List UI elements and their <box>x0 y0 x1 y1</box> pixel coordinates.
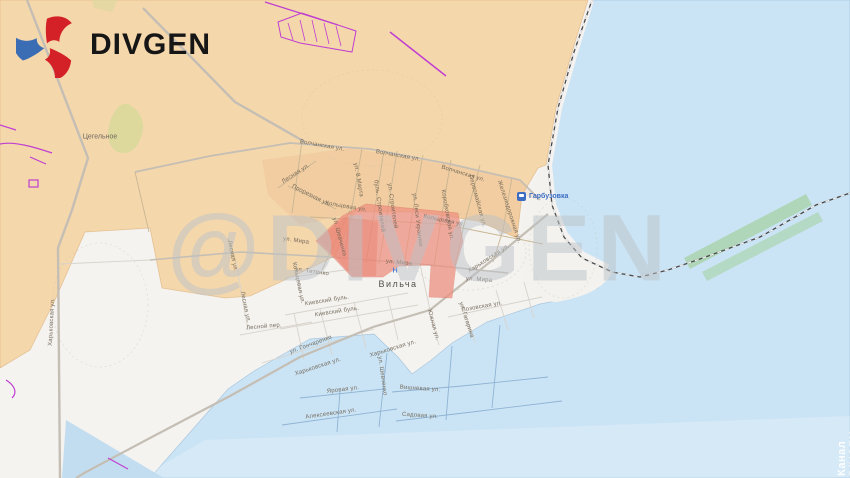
logo-text: DIVGEN <box>90 28 211 62</box>
water-pond <box>62 420 164 478</box>
map-screenshot: Волчанская ул.Волчанская ул.Волчанская у… <box>0 0 850 478</box>
channel-watermark: Канал DIVGEN | @divgen <box>836 426 850 476</box>
logo: DIVGEN <box>16 12 211 78</box>
logo-pinwheel-icon <box>16 12 78 78</box>
watermark-text: @DIVGEN <box>167 195 673 304</box>
